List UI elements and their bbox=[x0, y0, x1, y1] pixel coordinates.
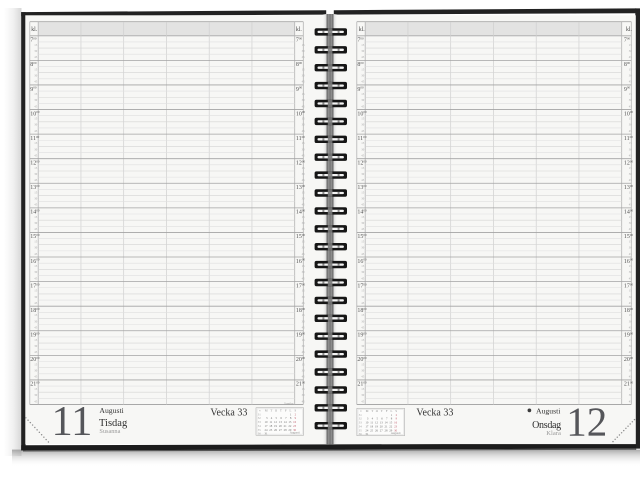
svg-text:25: 25 bbox=[370, 428, 374, 432]
svg-text:kl.: kl. bbox=[296, 27, 303, 33]
svg-text:15: 15 bbox=[361, 166, 365, 170]
svg-text:15: 15 bbox=[34, 43, 38, 47]
svg-text:15: 15 bbox=[302, 92, 306, 96]
svg-text:15: 15 bbox=[302, 313, 306, 317]
svg-text:15: 15 bbox=[361, 289, 365, 293]
svg-text:30: 30 bbox=[629, 393, 633, 397]
svg-text:45: 45 bbox=[629, 399, 633, 403]
svg-text:15: 15 bbox=[34, 313, 38, 317]
svg-text:15: 15 bbox=[302, 117, 306, 121]
svg-text:45: 45 bbox=[629, 301, 633, 305]
svg-text:T: T bbox=[280, 409, 282, 413]
svg-text:15: 15 bbox=[302, 166, 306, 170]
svg-text:30: 30 bbox=[302, 344, 306, 348]
svg-text:15: 15 bbox=[361, 387, 365, 391]
svg-text:36: 36 bbox=[258, 432, 262, 436]
svg-text:45: 45 bbox=[629, 80, 633, 84]
svg-text:45: 45 bbox=[361, 55, 365, 59]
svg-text:45: 45 bbox=[302, 350, 306, 354]
svg-text:30: 30 bbox=[361, 270, 365, 274]
svg-text:15: 15 bbox=[302, 67, 306, 71]
svg-text:45: 45 bbox=[34, 301, 38, 305]
svg-text:45: 45 bbox=[361, 399, 365, 403]
svg-text:11: 11 bbox=[52, 398, 93, 445]
svg-text:30: 30 bbox=[629, 295, 633, 299]
svg-text:30: 30 bbox=[361, 123, 365, 127]
svg-text:30: 30 bbox=[34, 74, 38, 78]
svg-text:45: 45 bbox=[34, 326, 38, 330]
svg-text:36: 36 bbox=[359, 432, 363, 436]
svg-text:30: 30 bbox=[629, 196, 633, 200]
svg-text:30: 30 bbox=[361, 172, 365, 176]
svg-text:45: 45 bbox=[629, 375, 633, 379]
svg-text:45: 45 bbox=[34, 375, 38, 379]
svg-text:Vecka 33: Vecka 33 bbox=[210, 407, 247, 418]
svg-text:45: 45 bbox=[629, 104, 633, 108]
svg-text:45: 45 bbox=[361, 252, 365, 256]
svg-text:30: 30 bbox=[34, 246, 38, 250]
svg-text:30: 30 bbox=[361, 246, 365, 250]
svg-text:30: 30 bbox=[629, 74, 633, 78]
svg-text:15: 15 bbox=[629, 92, 633, 96]
svg-text:30: 30 bbox=[34, 221, 38, 225]
svg-text:30: 30 bbox=[34, 393, 38, 397]
svg-text:15: 15 bbox=[34, 387, 38, 391]
svg-text:15: 15 bbox=[629, 239, 633, 243]
svg-text:45: 45 bbox=[361, 104, 365, 108]
svg-text:45: 45 bbox=[361, 301, 365, 305]
svg-text:30: 30 bbox=[361, 74, 365, 78]
svg-text:45: 45 bbox=[302, 301, 306, 305]
svg-text:25: 25 bbox=[269, 428, 273, 432]
svg-text:15: 15 bbox=[34, 141, 38, 145]
svg-text:15: 15 bbox=[302, 141, 306, 145]
svg-text:27: 27 bbox=[279, 428, 283, 432]
svg-text:15: 15 bbox=[34, 289, 38, 293]
svg-text:31: 31 bbox=[365, 432, 369, 436]
svg-text:30: 30 bbox=[302, 295, 306, 299]
svg-text:15: 15 bbox=[34, 166, 38, 170]
svg-text:30: 30 bbox=[629, 246, 633, 250]
svg-text:45: 45 bbox=[302, 375, 306, 379]
svg-text:45: 45 bbox=[361, 276, 365, 280]
svg-text:30: 30 bbox=[302, 123, 306, 127]
svg-text:15: 15 bbox=[629, 289, 633, 293]
svg-text:30: 30 bbox=[361, 393, 365, 397]
svg-text:15: 15 bbox=[629, 362, 633, 366]
svg-text:15: 15 bbox=[302, 387, 306, 391]
svg-text:45: 45 bbox=[34, 153, 38, 157]
svg-text:30: 30 bbox=[361, 49, 365, 53]
svg-text:30: 30 bbox=[302, 196, 306, 200]
svg-text:15: 15 bbox=[34, 239, 38, 243]
svg-text:15: 15 bbox=[361, 43, 365, 47]
svg-text:45: 45 bbox=[34, 178, 38, 182]
svg-text:15: 15 bbox=[302, 215, 306, 219]
svg-text:30: 30 bbox=[629, 98, 633, 102]
svg-text:15: 15 bbox=[361, 117, 365, 121]
svg-text:45: 45 bbox=[361, 153, 365, 157]
svg-text:45: 45 bbox=[302, 203, 306, 207]
svg-text:T: T bbox=[381, 409, 383, 413]
svg-text:45: 45 bbox=[361, 350, 365, 354]
svg-text:45: 45 bbox=[34, 203, 38, 207]
svg-text:30: 30 bbox=[34, 295, 38, 299]
svg-text:45: 45 bbox=[34, 80, 38, 84]
svg-text:26: 26 bbox=[375, 428, 379, 432]
svg-text:45: 45 bbox=[34, 276, 38, 280]
svg-text:15: 15 bbox=[629, 141, 633, 145]
svg-text:30: 30 bbox=[629, 49, 633, 53]
svg-text:45: 45 bbox=[34, 227, 38, 231]
svg-text:Vecka 33: Vecka 33 bbox=[416, 408, 453, 419]
svg-text:15: 15 bbox=[361, 141, 365, 145]
svg-text:30: 30 bbox=[629, 123, 633, 127]
svg-text:15: 15 bbox=[302, 289, 306, 293]
svg-text:30: 30 bbox=[302, 172, 306, 176]
svg-text:45: 45 bbox=[302, 227, 306, 231]
svg-text:15: 15 bbox=[34, 190, 38, 194]
svg-text:45: 45 bbox=[302, 55, 306, 59]
svg-text:15: 15 bbox=[34, 67, 38, 71]
svg-text:45: 45 bbox=[34, 55, 38, 59]
svg-text:15: 15 bbox=[629, 338, 633, 342]
svg-text:15: 15 bbox=[302, 338, 306, 342]
svg-text:30: 30 bbox=[302, 98, 306, 102]
svg-text:15: 15 bbox=[34, 338, 38, 342]
svg-text:45: 45 bbox=[361, 326, 365, 330]
svg-text:15: 15 bbox=[629, 117, 633, 121]
svg-text:Susanna: Susanna bbox=[99, 428, 120, 435]
svg-text:15: 15 bbox=[629, 387, 633, 391]
svg-text:Augusti: Augusti bbox=[536, 407, 560, 416]
svg-text:28: 28 bbox=[385, 428, 389, 432]
svg-text:30: 30 bbox=[34, 98, 38, 102]
svg-text:Onsdag: Onsdag bbox=[532, 420, 561, 431]
svg-text:15: 15 bbox=[361, 239, 365, 243]
svg-text:45: 45 bbox=[34, 252, 38, 256]
svg-text:45: 45 bbox=[34, 104, 38, 108]
svg-text:30: 30 bbox=[629, 172, 633, 176]
svg-text:45: 45 bbox=[302, 104, 306, 108]
svg-text:15: 15 bbox=[361, 92, 365, 96]
svg-text:30: 30 bbox=[629, 270, 633, 274]
svg-text:45: 45 bbox=[302, 80, 306, 84]
svg-text:45: 45 bbox=[629, 178, 633, 182]
svg-text:15: 15 bbox=[302, 264, 306, 268]
svg-text:30: 30 bbox=[302, 246, 306, 250]
svg-text:15: 15 bbox=[34, 92, 38, 96]
svg-text:T: T bbox=[371, 409, 373, 413]
svg-text:15: 15 bbox=[361, 67, 365, 71]
svg-text:30: 30 bbox=[302, 49, 306, 53]
svg-text:45: 45 bbox=[629, 153, 633, 157]
svg-text:30: 30 bbox=[34, 123, 38, 127]
svg-text:45: 45 bbox=[34, 350, 38, 354]
svg-text:30: 30 bbox=[629, 221, 633, 225]
svg-text:15: 15 bbox=[302, 239, 306, 243]
svg-text:Sunthe: Sunthe bbox=[284, 401, 294, 405]
svg-text:M: M bbox=[366, 409, 369, 413]
svg-text:45: 45 bbox=[361, 227, 365, 231]
svg-text:30: 30 bbox=[34, 49, 38, 53]
svg-text:45: 45 bbox=[629, 203, 633, 207]
svg-text:15: 15 bbox=[629, 264, 633, 268]
svg-text:45: 45 bbox=[629, 276, 633, 280]
svg-text:26: 26 bbox=[274, 428, 278, 432]
svg-text:15: 15 bbox=[34, 264, 38, 268]
svg-text:45: 45 bbox=[34, 129, 38, 133]
svg-text:15: 15 bbox=[361, 190, 365, 194]
svg-text:12: 12 bbox=[566, 399, 607, 445]
svg-text:15: 15 bbox=[361, 362, 365, 366]
svg-text:45: 45 bbox=[302, 153, 306, 157]
svg-text:15: 15 bbox=[361, 215, 365, 219]
svg-text:45: 45 bbox=[629, 326, 633, 330]
svg-text:15: 15 bbox=[629, 166, 633, 170]
svg-text:15: 15 bbox=[629, 215, 633, 219]
svg-text:45: 45 bbox=[361, 375, 365, 379]
svg-text:15: 15 bbox=[629, 43, 633, 47]
svg-text:30: 30 bbox=[34, 344, 38, 348]
svg-text:15: 15 bbox=[361, 338, 365, 342]
svg-text:30: 30 bbox=[34, 270, 38, 274]
svg-text:30: 30 bbox=[629, 344, 633, 348]
svg-text:45: 45 bbox=[302, 399, 306, 403]
svg-text:T: T bbox=[270, 409, 272, 413]
svg-text:15: 15 bbox=[302, 43, 306, 47]
svg-text:30: 30 bbox=[361, 295, 365, 299]
svg-text:30: 30 bbox=[302, 319, 306, 323]
svg-text:Klara: Klara bbox=[546, 430, 561, 437]
svg-text:30: 30 bbox=[361, 147, 365, 151]
svg-text:27: 27 bbox=[380, 428, 384, 432]
svg-text:30: 30 bbox=[34, 319, 38, 323]
svg-text:30: 30 bbox=[629, 147, 633, 151]
svg-text:45: 45 bbox=[302, 276, 306, 280]
svg-text:30: 30 bbox=[629, 319, 633, 323]
svg-text:45: 45 bbox=[361, 129, 365, 133]
svg-text:45: 45 bbox=[629, 350, 633, 354]
svg-text:kl.: kl. bbox=[626, 27, 633, 33]
svg-text:30: 30 bbox=[302, 74, 306, 78]
svg-text:30: 30 bbox=[361, 98, 365, 102]
svg-text:45: 45 bbox=[361, 80, 365, 84]
svg-text:45: 45 bbox=[302, 326, 306, 330]
svg-text:kl.: kl. bbox=[31, 27, 38, 33]
svg-text:30: 30 bbox=[302, 369, 306, 373]
svg-text:15: 15 bbox=[302, 190, 306, 194]
svg-text:31: 31 bbox=[265, 432, 269, 436]
svg-text:15: 15 bbox=[361, 264, 365, 268]
svg-text:30: 30 bbox=[361, 221, 365, 225]
svg-text:45: 45 bbox=[302, 129, 306, 133]
svg-text:30: 30 bbox=[302, 147, 306, 151]
svg-text:30: 30 bbox=[302, 270, 306, 274]
svg-text:30: 30 bbox=[361, 319, 365, 323]
svg-text:15: 15 bbox=[34, 215, 38, 219]
svg-text:30: 30 bbox=[34, 147, 38, 151]
svg-text:45: 45 bbox=[629, 252, 633, 256]
svg-text:kl.: kl. bbox=[359, 27, 366, 33]
svg-text:30: 30 bbox=[361, 344, 365, 348]
svg-text:M: M bbox=[265, 409, 268, 413]
svg-text:15: 15 bbox=[302, 362, 306, 366]
svg-text:15: 15 bbox=[34, 362, 38, 366]
svg-text:45: 45 bbox=[34, 399, 38, 403]
svg-text:15: 15 bbox=[629, 190, 633, 194]
svg-text:45: 45 bbox=[629, 55, 633, 59]
svg-text:28: 28 bbox=[284, 428, 288, 432]
svg-text:30: 30 bbox=[34, 196, 38, 200]
svg-text:30: 30 bbox=[302, 393, 306, 397]
svg-text:45: 45 bbox=[629, 227, 633, 231]
svg-text:45: 45 bbox=[361, 178, 365, 182]
svg-text:45: 45 bbox=[629, 129, 633, 133]
svg-text:Augusti: Augusti bbox=[99, 406, 123, 415]
svg-text:15: 15 bbox=[629, 313, 633, 317]
svg-text:15: 15 bbox=[34, 117, 38, 121]
svg-text:30: 30 bbox=[629, 369, 633, 373]
svg-text:45: 45 bbox=[302, 178, 306, 182]
svg-text:45: 45 bbox=[302, 252, 306, 256]
svg-text:45: 45 bbox=[361, 203, 365, 207]
svg-text:15: 15 bbox=[629, 67, 633, 71]
svg-text:30: 30 bbox=[302, 221, 306, 225]
svg-text:30: 30 bbox=[361, 369, 365, 373]
svg-text:30: 30 bbox=[34, 172, 38, 176]
svg-text:Augusti: Augusti bbox=[290, 431, 300, 435]
svg-text:Augusti: Augusti bbox=[391, 431, 401, 435]
svg-text:30: 30 bbox=[34, 369, 38, 373]
svg-text:30: 30 bbox=[361, 196, 365, 200]
svg-text:15: 15 bbox=[361, 313, 365, 317]
